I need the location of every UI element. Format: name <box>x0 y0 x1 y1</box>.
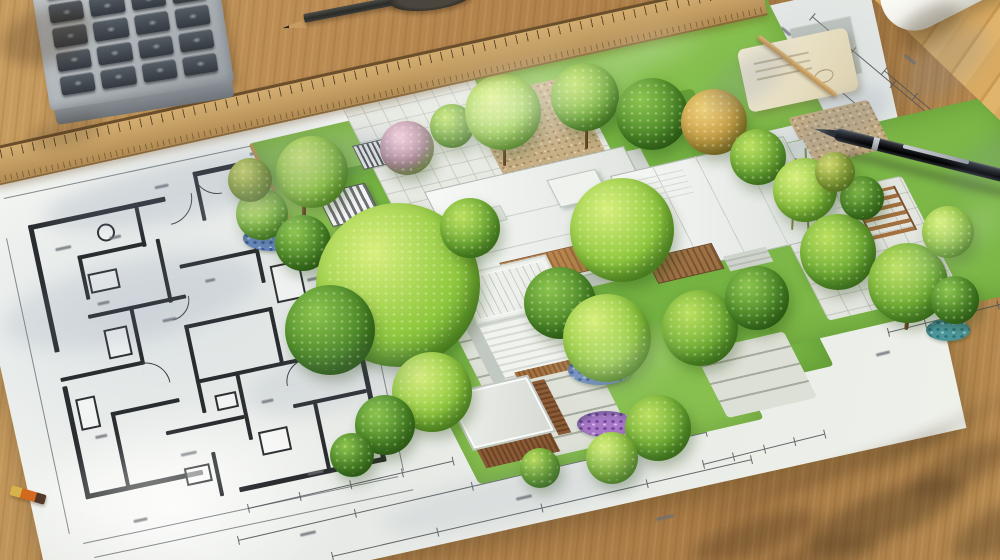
sunlight-overlay-layer <box>0 0 1000 560</box>
sunlight-streak <box>0 393 309 560</box>
scene-architect-desk <box>0 0 1000 560</box>
sunlight-streak <box>500 295 725 434</box>
sunlight-streak <box>836 148 1000 336</box>
sunlight-streak <box>115 150 384 274</box>
